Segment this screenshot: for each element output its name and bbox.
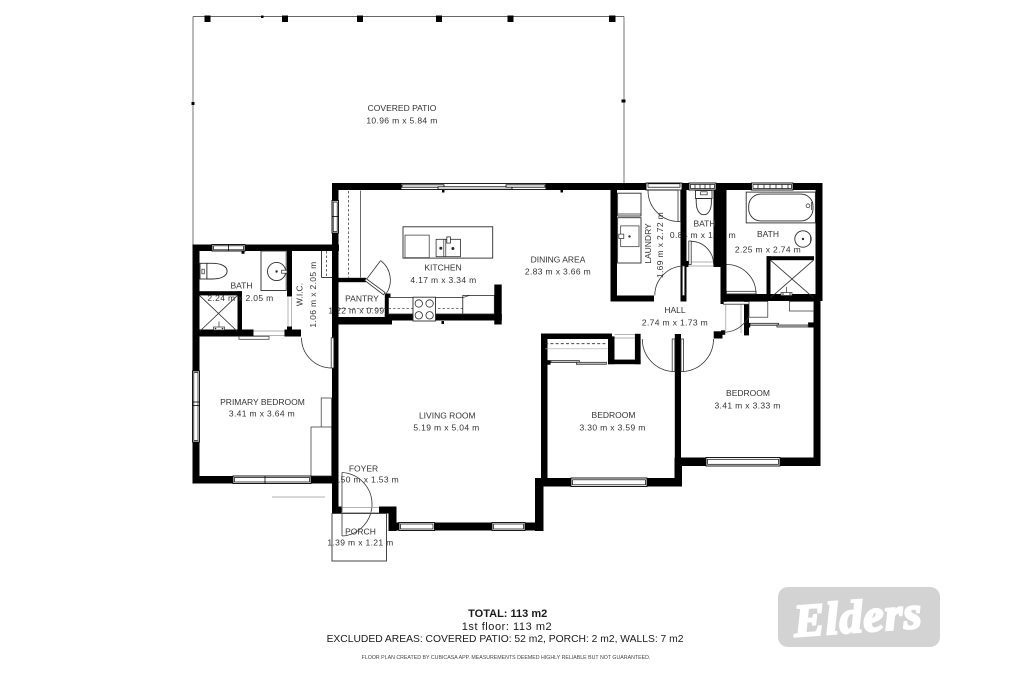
svg-text:3.30 m x 3.59 m: 3.30 m x 3.59 m: [579, 423, 645, 433]
svg-text:BEDROOM: BEDROOM: [592, 410, 636, 420]
svg-text:1st floor: 113 m2: 1st floor: 113 m2: [462, 621, 552, 633]
svg-text:FOYER: FOYER: [349, 464, 378, 474]
svg-text:PORCH: PORCH: [345, 527, 376, 537]
svg-text:Elders: Elders: [791, 587, 924, 647]
svg-text:2.83 m x 3.66 m: 2.83 m x 3.66 m: [525, 267, 591, 277]
svg-text:PRIMARY BEDROOM: PRIMARY BEDROOM: [220, 397, 305, 407]
svg-text:3.41 m x 3.64 m: 3.41 m x 3.64 m: [229, 409, 295, 419]
svg-text:EXCLUDED AREAS: COVERED PATIO:: EXCLUDED AREAS: COVERED PATIO: 52 m2, PO…: [327, 634, 684, 645]
svg-text:1.06 m x 2.05 m: 1.06 m x 2.05 m: [308, 261, 318, 327]
svg-text:1.50 m x 1.53 m: 1.50 m x 1.53 m: [333, 475, 399, 485]
svg-text:2.74 m x 1.73 m: 2.74 m x 1.73 m: [642, 318, 708, 328]
svg-text:10.96 m x 5.84 m: 10.96 m x 5.84 m: [366, 116, 437, 126]
svg-text:2.25 m x 2.74 m: 2.25 m x 2.74 m: [735, 244, 801, 254]
svg-text:BATH: BATH: [230, 281, 252, 291]
svg-text:BATH: BATH: [757, 229, 779, 239]
svg-text:1.69 m x 2.72 m: 1.69 m x 2.72 m: [655, 212, 665, 278]
svg-text:LAUNDRY: LAUNDRY: [643, 223, 653, 264]
svg-text:3.41 m x 3.33 m: 3.41 m x 3.33 m: [714, 401, 780, 411]
svg-text:KITCHEN: KITCHEN: [424, 262, 461, 272]
svg-text:4.17 m x 3.34 m: 4.17 m x 3.34 m: [410, 275, 476, 285]
svg-text:TOTAL: 113 m2: TOTAL: 113 m2: [468, 608, 547, 620]
svg-text:DINING AREA: DINING AREA: [531, 255, 586, 265]
svg-text:BEDROOM: BEDROOM: [726, 388, 770, 398]
svg-text:PANTRY: PANTRY: [345, 294, 379, 304]
svg-text:W.I.C.: W.I.C.: [295, 283, 305, 306]
svg-text:5.19 m x 5.04 m: 5.19 m x 5.04 m: [413, 423, 479, 433]
svg-text:BATH: BATH: [693, 218, 715, 228]
svg-text:LIVING ROOM: LIVING ROOM: [419, 411, 476, 421]
svg-text:1.39 m x 1.21 m: 1.39 m x 1.21 m: [327, 538, 393, 548]
svg-text:2.24 m x 2.05 m: 2.24 m x 2.05 m: [207, 293, 273, 303]
svg-text:HALL: HALL: [664, 305, 686, 315]
svg-text:FLOOR PLAN CREATED BY CUBICASA: FLOOR PLAN CREATED BY CUBICASA APP. MEAS…: [362, 655, 651, 661]
svg-text:COVERED PATIO: COVERED PATIO: [368, 103, 437, 113]
